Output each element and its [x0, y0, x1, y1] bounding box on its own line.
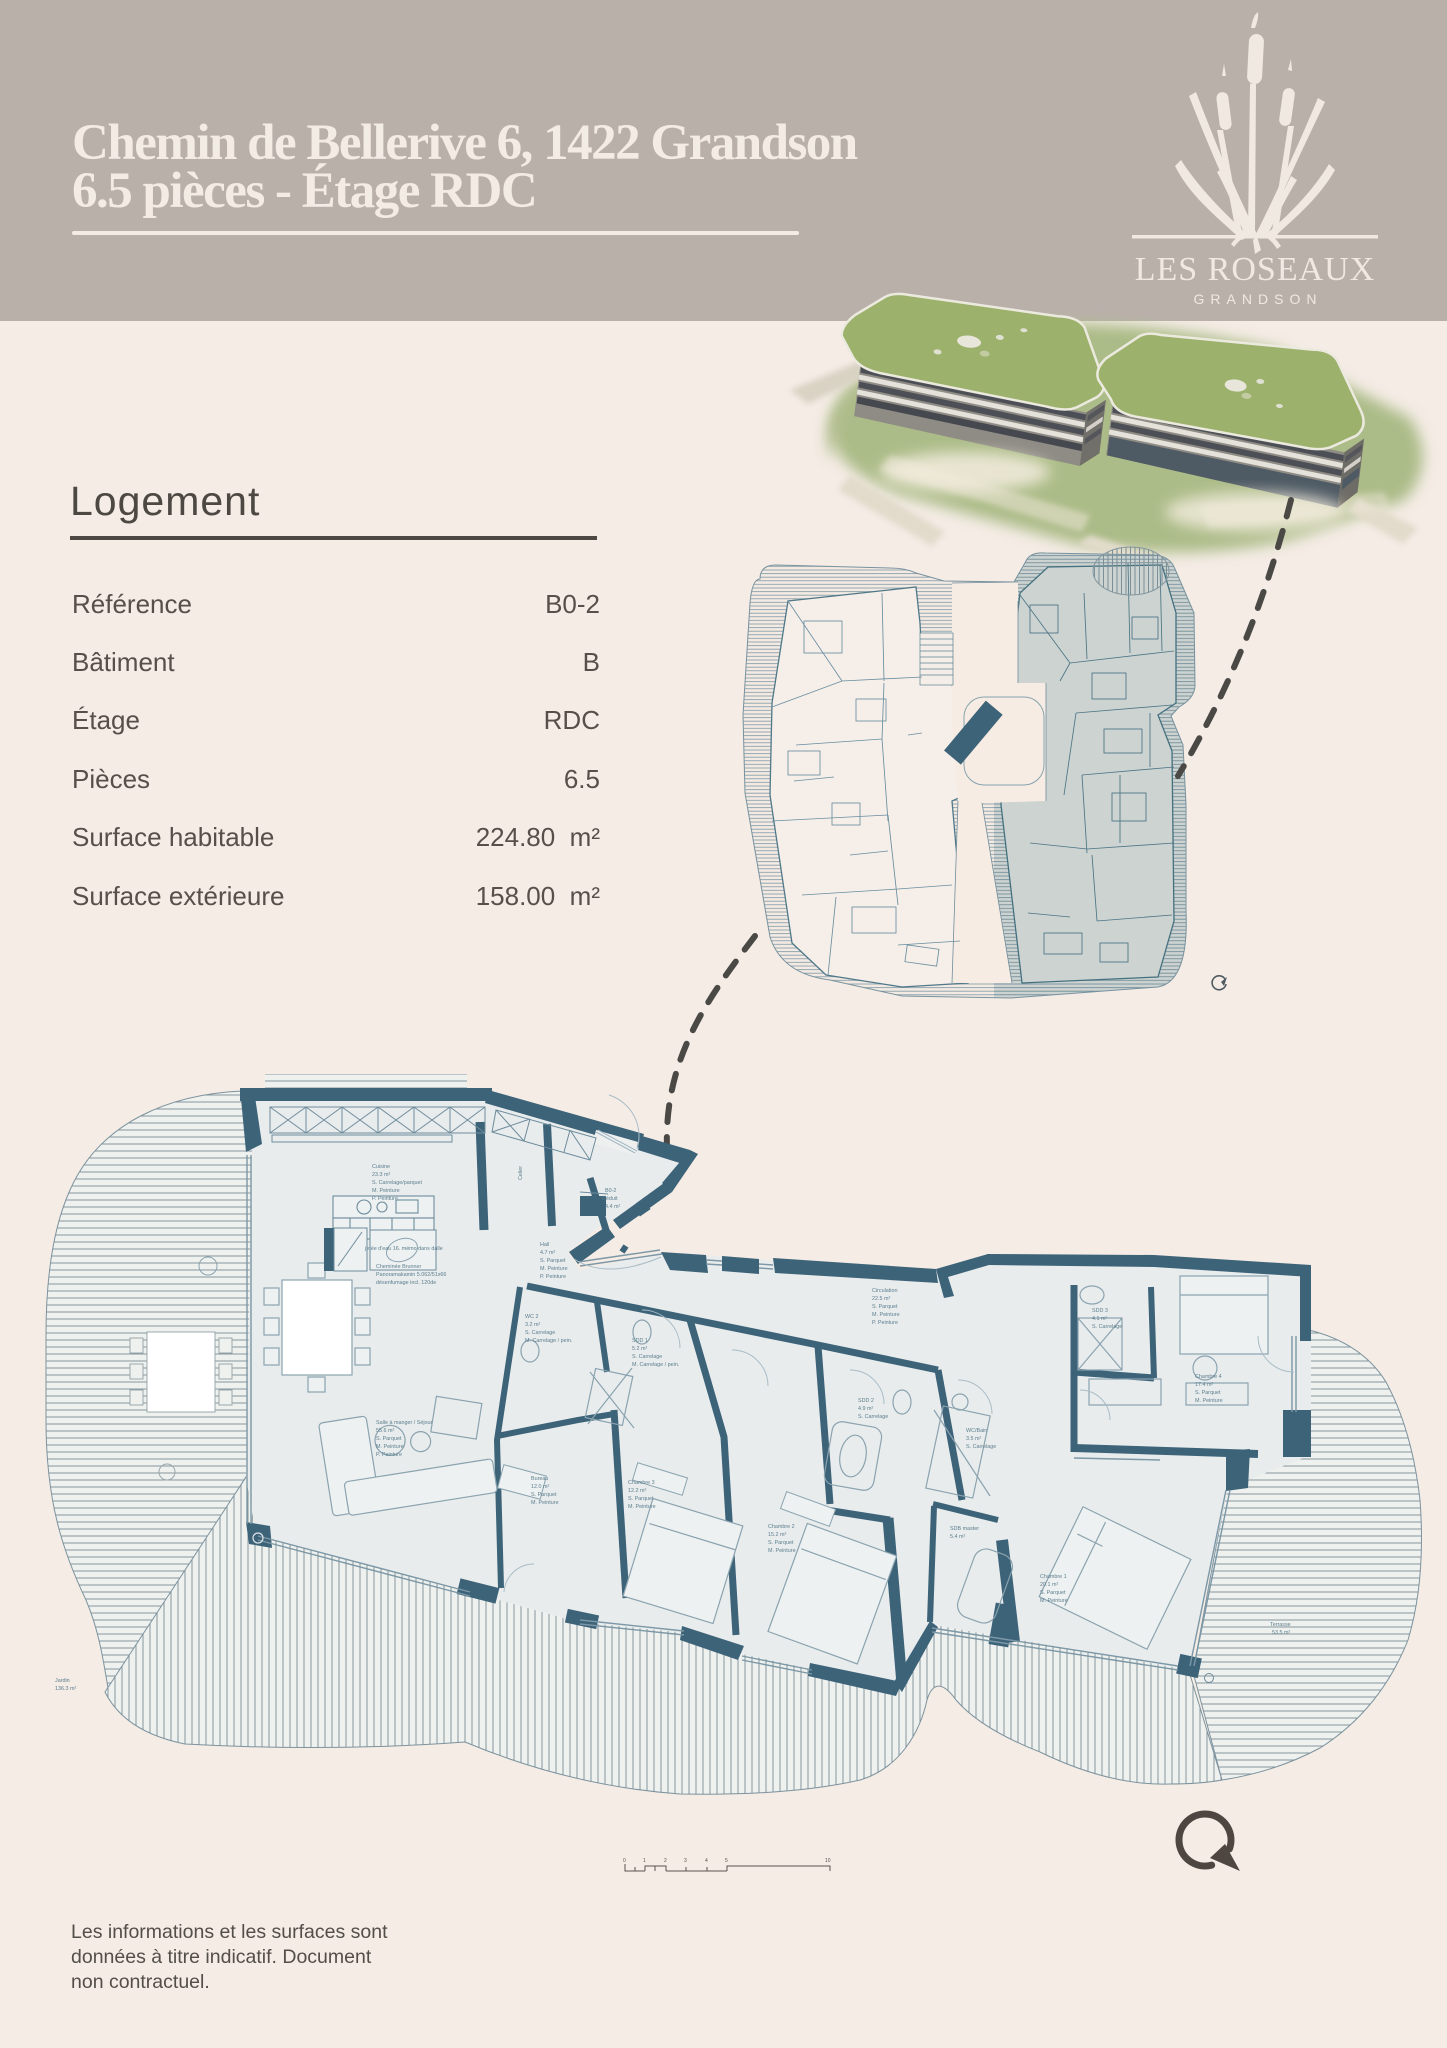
- svg-text:S. Parquet: S. Parquet: [376, 1436, 402, 1442]
- svg-text:S. Parquet: S. Parquet: [768, 1540, 794, 1546]
- svg-text:M. Peinture: M. Peinture: [768, 1548, 796, 1554]
- svg-text:M. Peinture: M. Peinture: [628, 1504, 656, 1510]
- svg-text:Panoramakamin 5.062/51x66: Panoramakamin 5.062/51x66: [376, 1272, 446, 1278]
- svg-text:SDB master: SDB master: [950, 1526, 979, 1532]
- svg-text:SDD 2: SDD 2: [858, 1398, 874, 1404]
- svg-text:M. Peinture: M. Peinture: [872, 1312, 900, 1318]
- svg-text:2: 2: [664, 1858, 667, 1864]
- svg-text:Chambre 4: Chambre 4: [1195, 1374, 1222, 1380]
- svg-text:Réduit: Réduit: [602, 1196, 618, 1202]
- svg-text:4: 4: [705, 1858, 708, 1864]
- svg-text:55.6 m²: 55.6 m²: [376, 1428, 394, 1434]
- svg-text:B0-2: B0-2: [605, 1188, 616, 1194]
- svg-text:Chambre 2: Chambre 2: [768, 1524, 795, 1530]
- svg-text:20.1 m²: 20.1 m²: [1040, 1582, 1058, 1588]
- svg-text:Cheminée Brunner: Cheminée Brunner: [376, 1264, 421, 1270]
- svg-text:P. Peinture: P. Peinture: [872, 1320, 898, 1326]
- svg-text:Cuisine: Cuisine: [372, 1164, 390, 1170]
- svg-text:4.1 m²: 4.1 m²: [1092, 1316, 1107, 1322]
- svg-text:M. Peinture: M. Peinture: [372, 1188, 400, 1194]
- svg-text:17.4 m²: 17.4 m²: [1195, 1382, 1213, 1388]
- svg-text:S. Carrelage: S. Carrelage: [525, 1330, 555, 1336]
- svg-text:S. Carrelage/parquet: S. Carrelage/parquet: [372, 1180, 423, 1186]
- svg-text:S. Carrelage: S. Carrelage: [1092, 1324, 1122, 1330]
- svg-text:S. Carrelage: S. Carrelage: [858, 1414, 888, 1420]
- svg-text:5: 5: [725, 1858, 728, 1864]
- svg-text:12.2 m²: 12.2 m²: [628, 1488, 646, 1494]
- svg-text:LES ROSEAUX: LES ROSEAUX: [1135, 251, 1376, 288]
- svg-text:5.2 m²: 5.2 m²: [632, 1346, 647, 1352]
- svg-text:10: 10: [825, 1858, 831, 1864]
- svg-text:M. Peinture: M. Peinture: [1195, 1398, 1223, 1404]
- svg-text:S. Parquet: S. Parquet: [531, 1492, 557, 1498]
- svg-text:P. Peinture: P. Peinture: [540, 1274, 566, 1280]
- svg-text:WC/Bain: WC/Bain: [966, 1428, 987, 1434]
- svg-text:SDD 1: SDD 1: [632, 1338, 648, 1344]
- svg-text:3.5 m²: 3.5 m²: [966, 1436, 981, 1442]
- svg-text:136.3 m²: 136.3 m²: [55, 1686, 76, 1692]
- svg-text:P. Peinture: P. Peinture: [376, 1452, 402, 1458]
- svg-text:Chambre 3: Chambre 3: [628, 1480, 655, 1486]
- svg-text:S. Carrelage: S. Carrelage: [966, 1444, 996, 1450]
- svg-text:M. Carrelage / pein.: M. Carrelage / pein.: [525, 1338, 572, 1344]
- svg-text:M. Peinture: M. Peinture: [1040, 1598, 1068, 1604]
- svg-text:3.2 m²: 3.2 m²: [525, 1322, 540, 1328]
- svg-text:WC 2: WC 2: [525, 1314, 538, 1320]
- svg-text:Bureau: Bureau: [531, 1476, 548, 1482]
- svg-text:5.4 m²: 5.4 m²: [950, 1534, 965, 1540]
- svg-text:Hall: Hall: [540, 1242, 549, 1248]
- svg-text:SDD 3: SDD 3: [1092, 1308, 1108, 1314]
- svg-text:Jardin: Jardin: [55, 1678, 70, 1684]
- svg-text:22.5 m²: 22.5 m²: [872, 1296, 890, 1302]
- svg-text:désenfumage incl. 120de: désenfumage incl. 120de: [376, 1280, 436, 1286]
- svg-text:53.5 m²: 53.5 m²: [1272, 1630, 1290, 1636]
- svg-text:M. Peinture: M. Peinture: [531, 1500, 559, 1506]
- svg-text:M. Carrelage / pein.: M. Carrelage / pein.: [632, 1362, 679, 1368]
- svg-text:23.3 m²: 23.3 m²: [372, 1172, 390, 1178]
- svg-text:jetée d'eau 16. mémo dans dall: jetée d'eau 16. mémo dans dalle: [364, 1246, 443, 1252]
- svg-text:0: 0: [623, 1858, 626, 1864]
- svg-text:3: 3: [684, 1858, 687, 1864]
- svg-text:4.7 m²: 4.7 m²: [540, 1250, 555, 1256]
- svg-text:12.0 m²: 12.0 m²: [531, 1484, 549, 1490]
- svg-text:Chambre 1: Chambre 1: [1040, 1574, 1067, 1580]
- svg-text:S. Parquet: S. Parquet: [628, 1496, 654, 1502]
- svg-text:Terrasse: Terrasse: [1270, 1622, 1291, 1628]
- svg-text:S. Parquet: S. Parquet: [1195, 1390, 1221, 1396]
- svg-text:4.4 m²: 4.4 m²: [605, 1204, 620, 1210]
- svg-text:M. Peinture: M. Peinture: [376, 1444, 404, 1450]
- svg-text:15.2 m²: 15.2 m²: [768, 1532, 786, 1538]
- svg-text:Circulation: Circulation: [872, 1288, 897, 1294]
- svg-text:4.9 m²: 4.9 m²: [858, 1406, 873, 1412]
- svg-text:Salle à manger / Séjour: Salle à manger / Séjour: [376, 1420, 433, 1426]
- svg-text:S. Parquet: S. Parquet: [540, 1258, 566, 1264]
- svg-text:M. Peinture: M. Peinture: [540, 1266, 568, 1272]
- svg-text:S. Carrelage: S. Carrelage: [632, 1354, 662, 1360]
- svg-text:P. Peinture: P. Peinture: [372, 1196, 398, 1202]
- svg-text:1: 1: [643, 1858, 646, 1864]
- svg-text:Celier: Celier: [518, 1166, 524, 1180]
- svg-text:S. Parquet: S. Parquet: [1040, 1590, 1066, 1596]
- svg-text:S. Parquet: S. Parquet: [872, 1304, 898, 1310]
